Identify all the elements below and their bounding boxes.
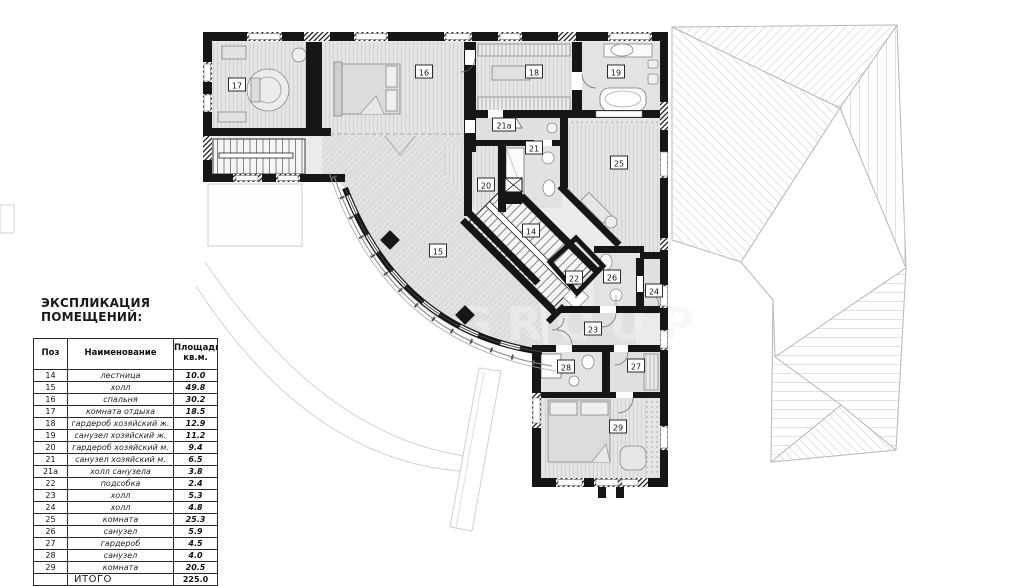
svg-text:27: 27 bbox=[631, 362, 641, 371]
room-label-15: 15 bbox=[430, 244, 447, 257]
sink-19 bbox=[611, 44, 633, 56]
room-label-24: 24 bbox=[646, 284, 663, 297]
cell-pos: 19 bbox=[34, 430, 68, 442]
svg-text:28: 28 bbox=[561, 363, 571, 372]
svg-text:29: 29 bbox=[613, 423, 623, 432]
room-label-23: 23 bbox=[585, 322, 602, 335]
room-label-19: 19 bbox=[608, 65, 625, 78]
bathtub-19 bbox=[600, 88, 646, 111]
room-label-25: 25 bbox=[611, 156, 628, 169]
cell-pos: 16 bbox=[34, 394, 68, 406]
wardrobe-27 bbox=[644, 354, 658, 390]
page: { "title": "ЭКСПЛИКАЦИЯ ПОМЕЩЕНИЙ:", "ta… bbox=[0, 0, 1031, 572]
cell-pos: 28 bbox=[34, 550, 68, 562]
cell-name: санузел хозяйский м. bbox=[68, 454, 174, 466]
table-total-row: ИТОГО225.0 bbox=[34, 574, 218, 586]
room-label-17: 17 bbox=[229, 78, 246, 91]
explication-title: ЭКСПЛИКАЦИЯ ПОМЕЩЕНИЙ: bbox=[41, 296, 223, 324]
room-label-20: 20 bbox=[478, 178, 495, 191]
cell-name: гардероб хозяйский ж. bbox=[68, 418, 174, 430]
table-row: 19санузел хозяйский ж.11.2 bbox=[34, 430, 218, 442]
total-cell-area: 225.0 bbox=[174, 574, 218, 586]
svg-text:23: 23 bbox=[588, 325, 598, 334]
cell-name: комната отдыха bbox=[68, 406, 174, 418]
cell-name: лестница bbox=[68, 370, 174, 382]
table-row: 24холл4.8 bbox=[34, 502, 218, 514]
cell-name: подсобка bbox=[68, 478, 174, 490]
svg-text:14: 14 bbox=[526, 227, 536, 236]
header-pos: Поз bbox=[34, 339, 68, 370]
cell-area: 5.9 bbox=[174, 526, 218, 538]
cell-name: санузел bbox=[68, 550, 174, 562]
table-row: 23холл5.3 bbox=[34, 490, 218, 502]
room-label-26: 26 bbox=[604, 270, 621, 283]
cell-name: холл bbox=[68, 502, 174, 514]
cell-name: спальня bbox=[68, 394, 174, 406]
cell-pos: 15 bbox=[34, 382, 68, 394]
table-row: 15холл49.8 bbox=[34, 382, 218, 394]
room-label-22: 22 bbox=[566, 271, 583, 284]
table-row: 25комната25.3 bbox=[34, 514, 218, 526]
header-area: Площадь кв.м. bbox=[174, 339, 218, 370]
cell-area: 6.5 bbox=[174, 454, 218, 466]
cell-area: 4.5 bbox=[174, 538, 218, 550]
table-row: 26санузел5.9 bbox=[34, 526, 218, 538]
cell-area: 25.3 bbox=[174, 514, 218, 526]
svg-text:24: 24 bbox=[649, 287, 659, 296]
cell-pos: 27 bbox=[34, 538, 68, 550]
svg-text:18: 18 bbox=[529, 68, 539, 77]
cell-area: 4.8 bbox=[174, 502, 218, 514]
wardrobe-18-top bbox=[478, 44, 570, 56]
table-row: 14лестница10.0 bbox=[34, 370, 218, 382]
cell-name: гардероб bbox=[68, 538, 174, 550]
cell-pos: 21а bbox=[34, 466, 68, 478]
room-label-28: 28 bbox=[558, 360, 575, 373]
svg-text:19: 19 bbox=[611, 68, 621, 77]
exterior-stair bbox=[213, 139, 305, 174]
svg-text:22: 22 bbox=[569, 274, 579, 283]
cell-name: холл санузела bbox=[68, 466, 174, 478]
cell-area: 12.9 bbox=[174, 418, 218, 430]
svg-text:21а: 21а bbox=[496, 121, 511, 130]
table-row: 21ахолл санузела3.8 bbox=[34, 466, 218, 478]
explication-table: Поз Наименование Площадь кв.м. 14лестниц… bbox=[33, 338, 218, 586]
room-label-27: 27 bbox=[628, 359, 645, 372]
cell-area: 49.8 bbox=[174, 382, 218, 394]
svg-text:26: 26 bbox=[607, 273, 617, 282]
cell-pos: 17 bbox=[34, 406, 68, 418]
room-label-14: 14 bbox=[523, 224, 540, 237]
shaft bbox=[505, 178, 522, 204]
table-row: 22подсобка2.4 bbox=[34, 478, 218, 490]
svg-text:20: 20 bbox=[481, 181, 491, 190]
cell-pos: 24 bbox=[34, 502, 68, 514]
total-cell-pos bbox=[34, 574, 68, 586]
room-label-16: 16 bbox=[416, 65, 433, 78]
cell-area: 9.4 bbox=[174, 442, 218, 454]
cell-pos: 22 bbox=[34, 478, 68, 490]
table-row: 20гардероб хозяйский м.9.4 bbox=[34, 442, 218, 454]
table-row: 28санузел4.0 bbox=[34, 550, 218, 562]
cell-name: комната bbox=[68, 514, 174, 526]
wardrobe-18-bottom bbox=[478, 97, 570, 111]
svg-text:25: 25 bbox=[614, 159, 624, 168]
cell-name: холл bbox=[68, 382, 174, 394]
cell-area: 18.5 bbox=[174, 406, 218, 418]
room-29-dotband bbox=[646, 398, 660, 476]
cell-pos: 14 bbox=[34, 370, 68, 382]
cell-pos: 21 bbox=[34, 454, 68, 466]
cell-pos: 23 bbox=[34, 490, 68, 502]
cell-pos: 18 bbox=[34, 418, 68, 430]
svg-text:17: 17 bbox=[232, 81, 242, 90]
room-label-29: 29 bbox=[610, 420, 627, 433]
table-row: 18гардероб хозяйский ж.12.9 bbox=[34, 418, 218, 430]
table-row: 27гардероб4.5 bbox=[34, 538, 218, 550]
table-header-row: Поз Наименование Площадь кв.м. bbox=[34, 339, 218, 370]
svg-text:15: 15 bbox=[433, 247, 443, 256]
explication-panel: ЭКСПЛИКАЦИЯ ПОМЕЩЕНИЙ: Поз Наименование … bbox=[33, 296, 223, 586]
room-label-18: 18 bbox=[526, 65, 543, 78]
cell-area: 11.2 bbox=[174, 430, 218, 442]
total-cell-name: ИТОГО bbox=[68, 574, 174, 586]
cell-area: 4.0 bbox=[174, 550, 218, 562]
svg-text:21: 21 bbox=[529, 144, 539, 153]
cell-pos: 20 bbox=[34, 442, 68, 454]
cell-name: санузел хозяйский ж. bbox=[68, 430, 174, 442]
cell-name: гардероб хозяйский м. bbox=[68, 442, 174, 454]
header-name: Наименование bbox=[68, 339, 174, 370]
table-row: 21санузел хозяйский м.6.5 bbox=[34, 454, 218, 466]
cell-area: 10.0 bbox=[174, 370, 218, 382]
svg-text:16: 16 bbox=[419, 68, 429, 77]
cell-area: 5.3 bbox=[174, 490, 218, 502]
cell-pos: 25 bbox=[34, 514, 68, 526]
cell-name: холл bbox=[68, 490, 174, 502]
room-label-21: 21 bbox=[526, 141, 543, 154]
cell-area: 3.8 bbox=[174, 466, 218, 478]
room-label-21а: 21а bbox=[493, 118, 516, 131]
armchair-29 bbox=[620, 446, 646, 470]
table-row: 16спальня30.2 bbox=[34, 394, 218, 406]
table-row: 17комната отдыха18.5 bbox=[34, 406, 218, 418]
cell-area: 30.2 bbox=[174, 394, 218, 406]
cell-name: санузел bbox=[68, 526, 174, 538]
cell-pos: 26 bbox=[34, 526, 68, 538]
cell-area: 2.4 bbox=[174, 478, 218, 490]
